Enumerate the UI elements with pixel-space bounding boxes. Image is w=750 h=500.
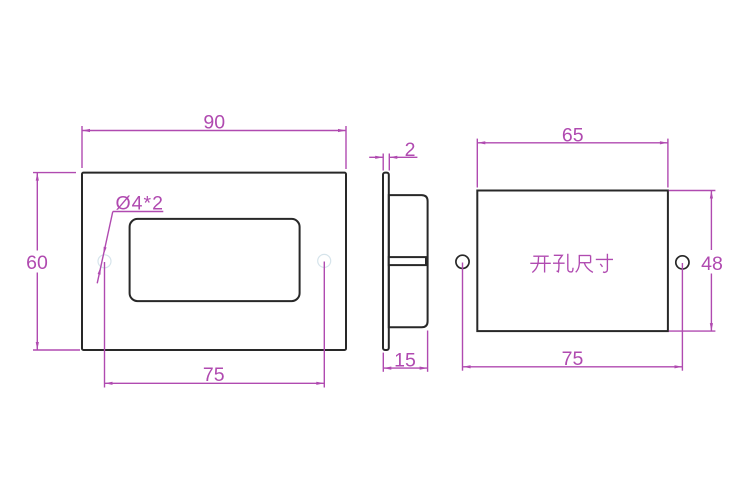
svg-text:65: 65: [562, 124, 584, 146]
svg-text:75: 75: [562, 348, 584, 370]
svg-text:15: 15: [394, 349, 416, 371]
svg-text:48: 48: [701, 253, 723, 275]
svg-text:90: 90: [203, 111, 225, 133]
svg-text:60: 60: [26, 252, 48, 274]
svg-text:75: 75: [203, 364, 225, 386]
svg-text:2: 2: [405, 139, 416, 161]
